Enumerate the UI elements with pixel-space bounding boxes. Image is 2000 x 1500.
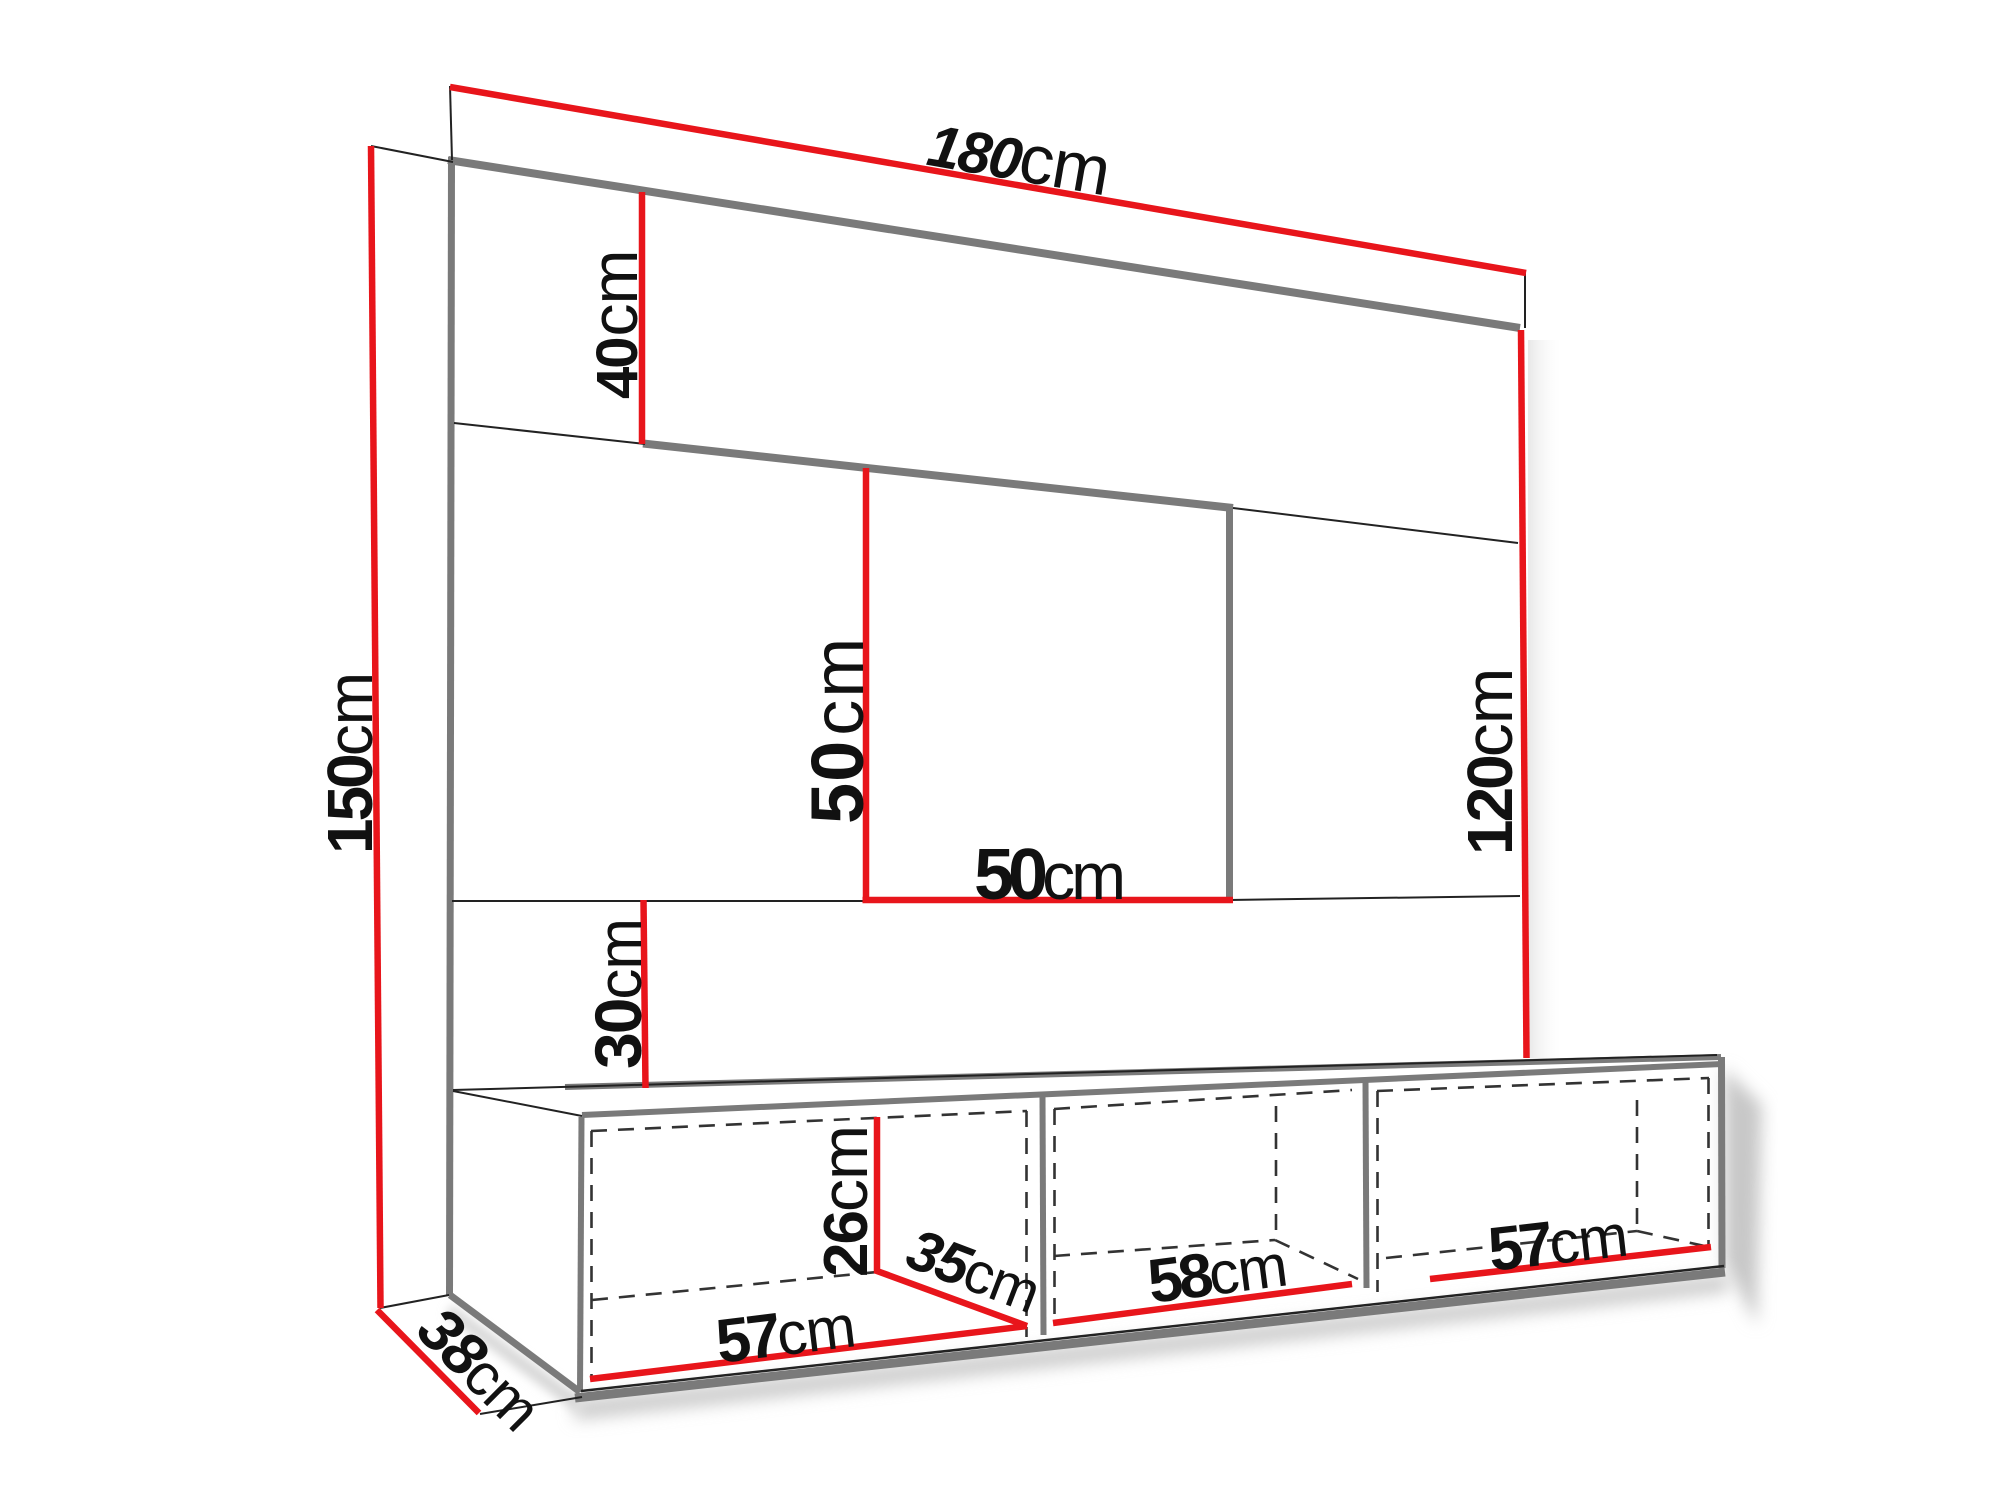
svg-text:150cm: 150cm bbox=[314, 673, 386, 854]
svg-text:40cm: 40cm bbox=[577, 251, 651, 400]
svg-text:50cm: 50cm bbox=[796, 636, 879, 824]
svg-text:120cm: 120cm bbox=[1451, 669, 1527, 855]
svg-text:50cm: 50cm bbox=[974, 835, 1122, 915]
svg-text:180cm: 180cm bbox=[923, 103, 1116, 210]
svg-text:26cm: 26cm bbox=[807, 1126, 881, 1277]
svg-text:57cm: 57cm bbox=[1485, 1201, 1631, 1285]
svg-text:30cm: 30cm bbox=[581, 919, 655, 1069]
svg-text:58cm: 58cm bbox=[1144, 1231, 1291, 1317]
